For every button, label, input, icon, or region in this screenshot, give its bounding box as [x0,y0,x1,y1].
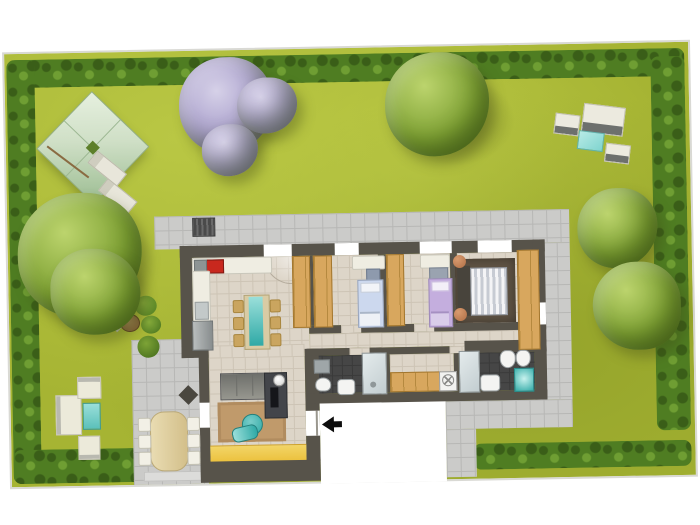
path-bottom-right-h [446,399,573,429]
patio-right-strip [543,242,573,399]
outdoor-chair [187,451,200,465]
hedge-right [650,56,691,431]
outdoor-chair [187,417,200,431]
bath1-mirror-cabinet [314,359,330,373]
garden-sofa [78,436,100,460]
bedroom2-bed-pillow [431,281,449,291]
entrance-arrow-icon [322,416,342,432]
bedroom2-window [420,241,452,254]
pavilion-canopy [38,93,148,203]
dining-chair [270,333,281,346]
hall-cabinet [390,371,441,392]
dining-chair [233,317,244,330]
hedge-top [8,48,684,88]
master-window [478,240,512,253]
outdoor-chair [138,435,151,449]
bath2-shower [459,351,481,393]
garden-bench-small [553,113,580,137]
garden-coffee-table [82,403,100,430]
kitchen-patio-door [264,244,292,257]
outdoor-chair [138,452,151,466]
garden-plot [4,42,696,487]
outdoor-chair [187,434,200,448]
master-wardrobe [517,250,541,350]
bedroom2-wardrobe [386,254,405,326]
shrub [141,315,161,333]
floor-plan-image [0,0,700,525]
blossom-tree-lobe [201,124,258,177]
bedroom1-bed-pillow [360,282,380,292]
dining-table-runner [249,297,264,346]
bath2-lit-shower [514,368,534,392]
master-bed [470,267,508,316]
yellow-mat [210,444,306,462]
dining-chair [233,300,244,313]
outdoor-chair [138,418,151,432]
tree-right-upper [577,187,658,268]
garden-sofa [55,395,82,435]
path-bottom-right-v [446,429,477,478]
tree-right-lower [592,261,682,351]
bedroom1-bed-blanket [360,311,380,325]
bath1-sink-icon [337,379,355,395]
garden-bench-small [604,143,631,165]
blossom-tree-lobe [237,77,298,134]
hedge-bottom-right [473,440,691,470]
kitchen-sink-icon [195,302,209,320]
bath1-bidet-icon [315,377,331,391]
outdoor-dining-table [150,411,189,472]
plot-notch [320,399,447,483]
bedroom1-window [335,243,359,255]
arrow-tail [333,421,342,427]
bedroom2-bed-blanket [431,311,449,325]
entry-door-leaf [316,411,318,436]
dining-chair [233,334,244,347]
kitchen-tall-cabinet [292,256,311,328]
bath2-sink-icon [480,374,500,391]
fridge-icon [192,321,214,351]
garden-sofa [77,377,101,399]
dining-chair [270,316,281,329]
dining-chair [270,299,281,312]
bath1-shower-drain [370,382,376,388]
bath1-shower [362,352,388,394]
bedroom1-wardrobe [313,255,333,327]
wall-bottom-living [201,459,321,483]
living-side-window [200,403,210,428]
tv-icon [270,387,278,407]
garden-side-table [577,130,605,152]
grill-icon [192,217,215,236]
